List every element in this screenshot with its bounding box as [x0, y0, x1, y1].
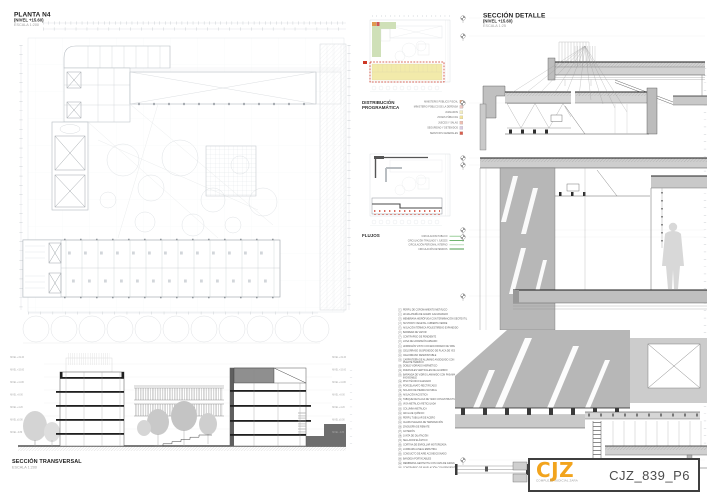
- transversal-title-block: SECCIÓN TRANSVERSAL ESCALA 1:200: [12, 459, 172, 480]
- keynote-text: PERFIL TUBULAR DE ACERO: [403, 416, 435, 419]
- keynote-number: 18: [398, 389, 402, 393]
- keynote-text: CONTRAPISO DE PENDIENTE: [403, 335, 436, 338]
- program-legend-item: SERVICIOS GENERALES: [398, 131, 463, 136]
- keynote-text: PERFIL DE CORONAMIENTO METÁLICO: [403, 308, 447, 311]
- level-label: NIVEL +19.40: [10, 356, 50, 369]
- keynote-text: SELLADOR ELÁSTICO: [403, 439, 428, 442]
- keynote-number: 1: [398, 308, 402, 312]
- program-legend-label: SERVICIOS GENERALES: [430, 132, 458, 135]
- logo-subtitle: COMPLEJO JUDICIAL ZARA: [536, 479, 603, 482]
- keynote-text: CONDUCTO DE AIRE ACONDICIONADO: [403, 452, 447, 455]
- flow-legend-item: CIRCULACIÓN DETENIDOS: [372, 247, 464, 251]
- keynote-number: 13: [398, 364, 402, 368]
- keynote-text: ANCLAJE QUÍMICO: [403, 411, 424, 414]
- key-plan-flows: [362, 148, 457, 232]
- keynote-number: 21: [398, 402, 402, 406]
- transversal-levels-right: NIVEL +19.40NIVEL +15.60NIVEL +11.80NIVE…: [332, 356, 362, 500]
- keynote-text: CHAPA PLEGADA DE TERMINACIÓN: [403, 421, 443, 424]
- keynote-text: CORTINA DE ENROLLAR MOTORIZADA: [403, 443, 446, 446]
- keynote-number: 12: [398, 358, 402, 362]
- level-label: NIVEL +4.20: [10, 406, 50, 419]
- level-label: NIVEL ±0.00: [332, 419, 362, 432]
- key-plan-program: [362, 14, 457, 98]
- keynote-number: 33: [398, 457, 402, 461]
- keynote-text: HORMIGÓN VISTO CON ENCOFRADO DE TABLAS: [403, 344, 458, 347]
- program-legend-title: DISTRIBUCIÓN PROGRAMÁTICA: [362, 100, 402, 121]
- keynote-number: 24: [398, 416, 402, 420]
- flow-legend-label: CIRCULACIÓN DETENIDOS: [418, 248, 447, 251]
- program-legend-label: SEGURIDAD Y DETENIDOS: [427, 127, 458, 130]
- detail-section-drawing: [455, 8, 707, 490]
- keynote-number: 25: [398, 421, 402, 425]
- keynote-text: DOBLE VIDRIADO HERMÉTICO: [403, 364, 437, 367]
- plan-title-block: PLANTA N4 (NIVEL +15.60) ESCALA 1:200: [14, 11, 134, 43]
- keynote-text: PORCELANATO RECTIFICADO: [403, 384, 437, 387]
- logo-text: CJZ: [536, 462, 604, 479]
- keynote-number: 8: [398, 340, 402, 344]
- level-label: NIVEL +19.40: [332, 356, 362, 369]
- keynote-number: 11: [398, 353, 402, 357]
- keynote-number: 19: [398, 393, 402, 397]
- keynote-text: BANDEJA PORTACABLES: [403, 457, 431, 460]
- keynote-text: PISO TÉCNICO ELEVADO: [403, 380, 431, 383]
- level-label: NIVEL +11.80: [10, 381, 50, 394]
- keynote-number: 31: [398, 448, 402, 452]
- keynote-number: 15: [398, 373, 402, 377]
- keynote-number: 27: [398, 430, 402, 434]
- logo: CJZ COMPLEJO JUDICIAL ZARA: [530, 462, 604, 489]
- keynote-text: COLUMNA METÁLICA: [403, 407, 427, 410]
- level-label: NIVEL +15.60: [10, 369, 50, 382]
- floor-plan-drawing: [8, 10, 353, 350]
- keynote-number: 20: [398, 398, 402, 402]
- keynote-text: CIELORRASO SUSPENDIDO DE PLACA DE YESO: [403, 349, 457, 352]
- transversal-scale: ESCALA 1:200: [12, 465, 172, 470]
- keynote-text: BARRERA DE VAPOR: [403, 331, 427, 334]
- keynote-number: 10: [398, 349, 402, 353]
- keynote-text: CIELORRASO DESMONTABLE: [403, 353, 436, 356]
- keynote-text: LUMINARIA LINEAL EMBUTIDA: [403, 448, 437, 451]
- keynote-number: 16: [398, 380, 402, 384]
- keynote-number: 30: [398, 443, 402, 447]
- keynote-number: 26: [398, 425, 402, 429]
- program-legend-label: MINISTERIO PÚBLICO DE LA DEFENSA: [414, 106, 458, 109]
- program-title-line2: PROGRAMÁTICA: [362, 105, 402, 110]
- level-label: NIVEL +8.00: [10, 394, 50, 407]
- plan-scale: ESCALA 1:200: [14, 23, 134, 28]
- title-block: CJZ COMPLEJO JUDICIAL ZARA CJZ_839_P6: [528, 458, 700, 492]
- keynote-number: 28: [398, 434, 402, 438]
- keynote-number: 32: [398, 452, 402, 456]
- keynote-text: AISLACIÓN ACÚSTICA: [403, 393, 428, 396]
- keynote-number: 35: [398, 466, 402, 468]
- human-figure: [662, 223, 684, 289]
- keynote-text: LOSA DE HORMIGÓN ARMADO: [403, 340, 437, 343]
- program-legend-label: MINISTERIO PÚBLICO FISCAL: [424, 100, 458, 103]
- keynote-number: 22: [398, 407, 402, 411]
- keynote-number: 4: [398, 322, 402, 326]
- keynote-text: SOLADO DE PIEDRA NATURAL: [403, 389, 437, 392]
- level-label: NIVEL -3.80: [10, 431, 50, 444]
- keynote-number: 14: [398, 369, 402, 373]
- level-label: NIVEL ±0.00: [10, 419, 50, 432]
- detail-scale: ESCALA 1:25: [483, 24, 603, 29]
- keynote-number: 2: [398, 313, 402, 317]
- keynote-text: PARASOLES VERTICALES DE ALUMINIO: [403, 369, 448, 372]
- keynote-number: 3: [398, 317, 402, 321]
- detail-title-block: SECCIÓN DETALLE (NIVEL +15.60) ESCALA 1:…: [483, 12, 603, 44]
- keynote-text: VIGA METÁLICA RETICULADA: [403, 402, 436, 405]
- keynote-text: AISLACIÓN TÉRMICA POLIESTIRENO EXPANDIDO: [403, 326, 458, 329]
- keynote-text: JUNTA DE DILATACIÓN: [403, 434, 428, 437]
- keynote-number: 29: [398, 439, 402, 443]
- keynote-number: 9: [398, 344, 402, 348]
- sheet-code: CJZ_839_P6: [604, 468, 698, 483]
- transversal-section-drawing: [8, 350, 360, 462]
- flows-legend: CIRCULACIÓN PÚBLICO CIRCULACIÓN TRASLADO…: [372, 234, 464, 302]
- keynote-number: 5: [398, 326, 402, 330]
- level-label: NIVEL +4.20: [332, 406, 362, 419]
- flow-legend-label: CIRCULACIÓN TRASLADO Y JUECES: [408, 239, 448, 242]
- level-label: NIVEL +11.80: [332, 381, 362, 394]
- flow-legend-label: CIRCULACIÓN PÚBLICO: [421, 235, 447, 238]
- level-label: NIVEL +8.00: [332, 394, 362, 407]
- flow-legend-label: CIRCULACIÓN PERSONAL INTERNO: [408, 243, 447, 246]
- keynote-number: 6: [398, 331, 402, 335]
- keynote-text: HOJALATERÍA DE ACERO GALVANIZADO: [403, 313, 448, 316]
- level-label: NIVEL +15.60: [332, 369, 362, 382]
- keynote-text: CONTRAPISO DE NIVELACIÓN CON PENDIENTE: [403, 466, 457, 468]
- keynote-number: 7: [398, 335, 402, 339]
- keynote-text: ZINGUERÍA DE REMATE: [403, 425, 430, 428]
- keynote-number: 23: [398, 411, 402, 415]
- keynote-text: SUSTRATO VEGETAL CUBIERTA VERDE: [403, 322, 447, 325]
- keynote-text: GOTERÓN: [403, 430, 415, 433]
- level-label: NIVEL -3.80: [332, 431, 362, 444]
- keynote-text: MEMBRANA GEOTEXTIL CON CAPA DE GRAVA: [403, 461, 455, 464]
- drawing-sheet: PLANTA N4 (NIVEL +15.60) ESCALA 1:200: [0, 0, 707, 500]
- keynote-number: 34: [398, 461, 402, 465]
- keynote-number: 17: [398, 384, 402, 388]
